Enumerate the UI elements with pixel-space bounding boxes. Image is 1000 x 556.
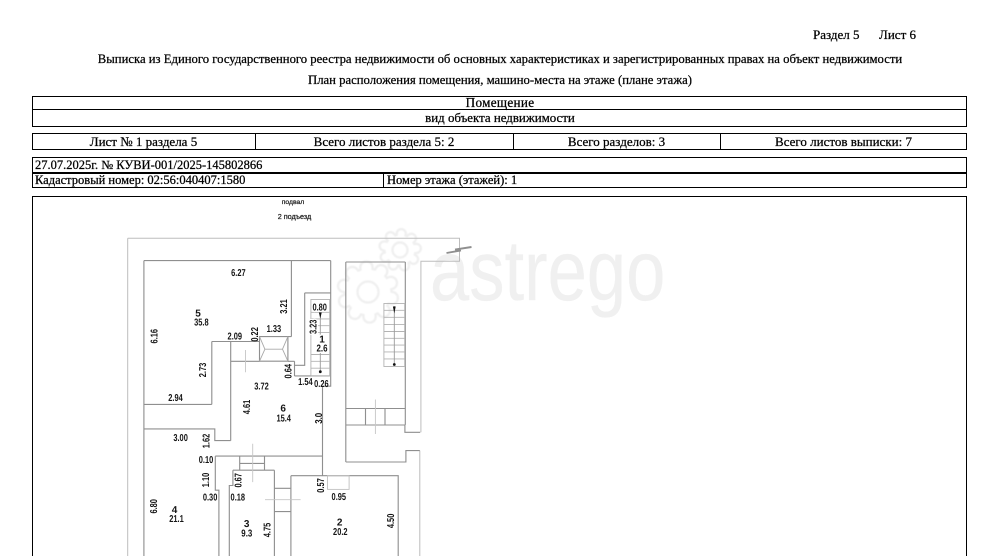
svg-text:0.64: 0.64 (283, 364, 294, 379)
svg-text:2.94: 2.94 (168, 393, 183, 404)
svg-text:2.6: 2.6 (317, 344, 328, 355)
svg-text:4.50: 4.50 (386, 513, 397, 528)
svg-text:1.10: 1.10 (201, 472, 212, 487)
svg-text:6.16: 6.16 (150, 329, 161, 344)
svg-text:3.00: 3.00 (173, 433, 188, 444)
svg-text:3.0: 3.0 (314, 412, 325, 423)
svg-text:1.62: 1.62 (201, 433, 212, 448)
svg-text:6.80: 6.80 (149, 499, 160, 514)
svg-text:0.18: 0.18 (231, 492, 246, 503)
svg-text:3.72: 3.72 (254, 381, 269, 392)
svg-text:20.2: 20.2 (333, 527, 348, 538)
svg-text:0.26: 0.26 (314, 379, 329, 390)
svg-text:0.30: 0.30 (203, 493, 218, 504)
svg-text:0.22: 0.22 (250, 327, 261, 342)
svg-text:3.21: 3.21 (279, 299, 290, 314)
svg-text:0.80: 0.80 (312, 302, 327, 313)
svg-text:15.4: 15.4 (276, 413, 291, 424)
svg-text:0.67: 0.67 (234, 473, 245, 488)
svg-text:9.3: 9.3 (241, 528, 252, 539)
svg-text:0.57: 0.57 (316, 478, 327, 493)
svg-text:35.8: 35.8 (194, 318, 209, 329)
svg-text:1.33: 1.33 (267, 324, 282, 335)
svg-text:6.27: 6.27 (231, 268, 246, 279)
svg-text:1.54: 1.54 (298, 377, 313, 388)
svg-text:4.61: 4.61 (242, 399, 253, 414)
svg-text:0.10: 0.10 (199, 455, 214, 466)
svg-text:2.73: 2.73 (198, 362, 209, 377)
svg-text:0.95: 0.95 (332, 492, 347, 503)
svg-text:3.23: 3.23 (309, 319, 320, 334)
svg-text:21.1: 21.1 (169, 514, 184, 525)
svg-text:4.75: 4.75 (262, 522, 273, 537)
svg-text:2.09: 2.09 (228, 331, 243, 342)
